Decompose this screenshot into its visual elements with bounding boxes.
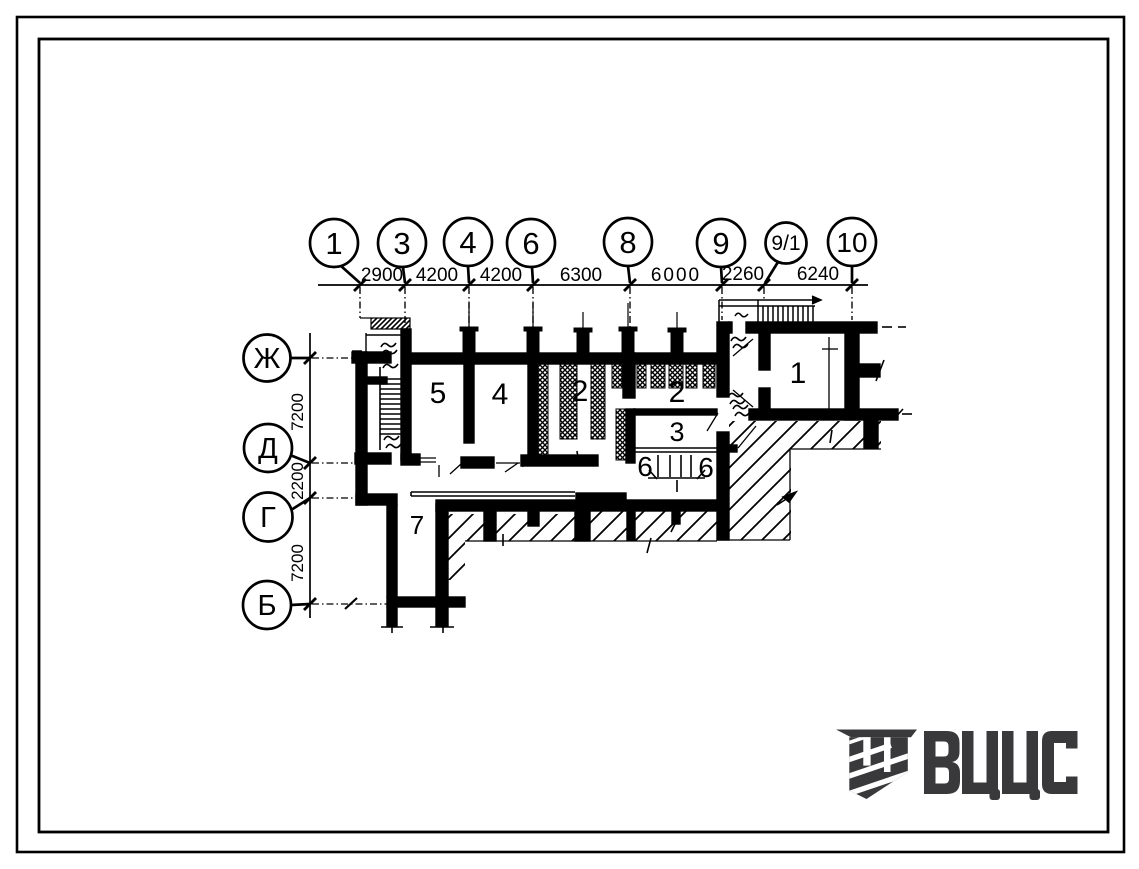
svg-text:6: 6 bbox=[637, 451, 653, 482]
svg-text:1: 1 bbox=[325, 226, 342, 261]
svg-text:Д: Д bbox=[258, 433, 278, 465]
svg-text:8: 8 bbox=[619, 225, 636, 260]
svg-text:1: 1 bbox=[790, 357, 807, 390]
svg-text:Б: Б bbox=[257, 590, 276, 622]
svg-text:10: 10 bbox=[836, 227, 867, 258]
svg-text:2200: 2200 bbox=[288, 462, 307, 500]
svg-text:3: 3 bbox=[669, 417, 684, 447]
svg-text:4: 4 bbox=[492, 378, 509, 411]
svg-text:4: 4 bbox=[459, 225, 476, 260]
svg-text:4200: 4200 bbox=[416, 265, 458, 286]
svg-text:7200: 7200 bbox=[288, 544, 307, 582]
svg-text:9/1: 9/1 bbox=[771, 232, 800, 255]
svg-text:2900: 2900 bbox=[361, 265, 403, 286]
svg-text:6000: 6000 bbox=[651, 265, 701, 286]
svg-text:2: 2 bbox=[572, 375, 589, 408]
svg-text:2260: 2260 bbox=[722, 264, 764, 285]
svg-text:3: 3 bbox=[393, 226, 410, 261]
svg-text:9: 9 bbox=[712, 226, 729, 261]
svg-text:Г: Г bbox=[260, 502, 276, 534]
svg-text:6: 6 bbox=[698, 452, 714, 483]
svg-text:6300: 6300 bbox=[560, 265, 602, 286]
svg-text:4200: 4200 bbox=[480, 265, 522, 286]
svg-text:6240: 6240 bbox=[797, 264, 839, 285]
svg-text:7: 7 bbox=[410, 510, 424, 540]
svg-text:7200: 7200 bbox=[288, 393, 307, 431]
svg-text:6: 6 bbox=[522, 226, 539, 261]
svg-text:5: 5 bbox=[430, 377, 447, 410]
svg-text:2: 2 bbox=[669, 376, 686, 409]
svg-text:Ж: Ж bbox=[254, 343, 281, 375]
